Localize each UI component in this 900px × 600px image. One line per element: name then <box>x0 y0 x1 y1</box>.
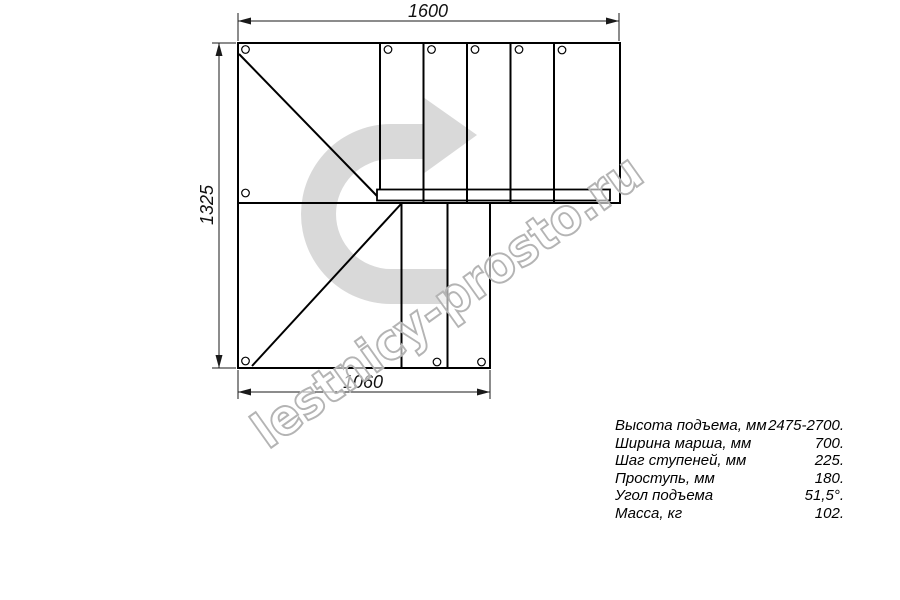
dimension-left-label: 1325 <box>197 184 217 225</box>
spec-label: Шаг ступеней, мм <box>615 452 746 470</box>
spec-label: Высота подъема, мм <box>615 417 767 435</box>
arrowhead-left-icon <box>238 18 251 25</box>
arrowhead-up-icon <box>216 43 223 56</box>
spec-value: 2475-2700. <box>768 417 844 435</box>
spec-value: 102. <box>815 505 844 523</box>
mounting-hole <box>428 46 436 54</box>
spec-row-step-pitch: Шаг ступеней, мм 225. <box>615 452 844 470</box>
spec-label: Ширина марша, мм <box>615 435 751 453</box>
spec-row-tread: Проступь, мм 180. <box>615 470 844 488</box>
spec-label: Масса, кг <box>615 505 682 523</box>
upper-flight-diagonal <box>239 54 377 196</box>
staircase-drawing-canvas: 1600 1325 1060 lestnicy-prosto.ru Высота… <box>0 0 900 600</box>
spec-row-flight-width: Ширина марша, мм 700. <box>615 435 844 453</box>
arrowhead-left-icon <box>238 389 251 396</box>
arrowhead-right-icon <box>606 18 619 25</box>
spec-value: 180. <box>815 470 844 488</box>
spec-table: Высота подъема, мм 2475-2700. Ширина мар… <box>615 417 844 522</box>
spec-label: Проступь, мм <box>615 470 715 488</box>
spec-value: 51,5°. <box>805 487 844 505</box>
mounting-hole <box>242 46 250 54</box>
mounting-hole <box>515 46 523 54</box>
spec-row-height: Высота подъема, мм 2475-2700. <box>615 417 844 435</box>
arrowhead-right-icon <box>477 389 490 396</box>
dimension-top-label: 1600 <box>408 1 448 21</box>
spec-label: Угол подъема <box>615 487 713 505</box>
spec-value: 700. <box>815 435 844 453</box>
mounting-hole <box>384 46 392 54</box>
mounting-hole <box>433 358 441 366</box>
spec-value: 225. <box>815 452 844 470</box>
mounting-hole <box>471 46 479 54</box>
mounting-hole <box>242 189 250 197</box>
spec-row-mass: Масса, кг 102. <box>615 505 844 523</box>
spec-row-angle: Угол подъема 51,5°. <box>615 487 844 505</box>
mounting-hole <box>558 46 566 54</box>
arrowhead-down-icon <box>216 355 223 368</box>
mounting-hole <box>478 358 486 366</box>
mounting-hole <box>242 357 250 365</box>
